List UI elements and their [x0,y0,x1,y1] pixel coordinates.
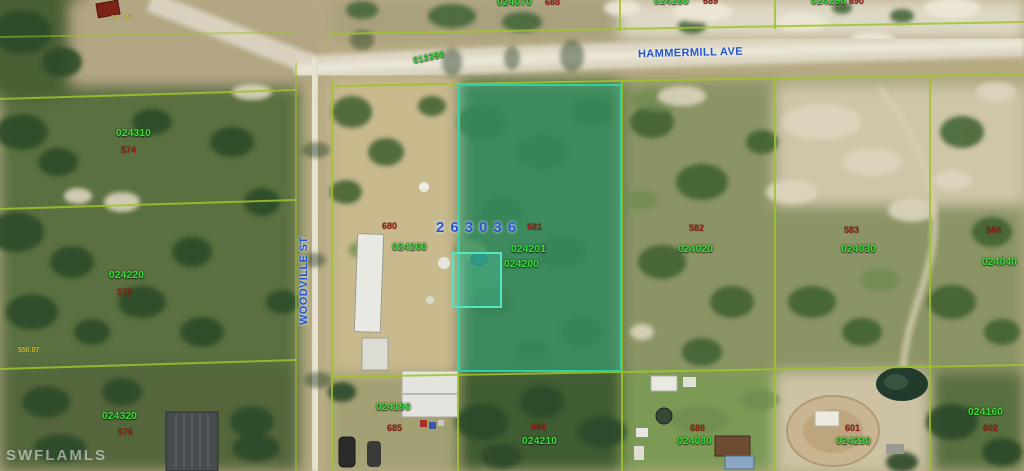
dark-vehicle [367,441,381,467]
dimension-label: 550.07 [18,347,39,354]
block-label-582: 582 [689,224,704,233]
white-shed [651,376,677,391]
dark-vehicle [339,437,355,467]
dirt-circle [787,396,879,466]
parcel-label-024070: 024070 [497,0,532,8]
white-shed [815,411,839,426]
parcel-label-024220: 024220 [109,271,144,281]
parcel-label-024160: 024160 [968,408,1003,418]
parcel-label-024210: 024210 [522,437,557,447]
parcel-label-024280: 024280 [654,0,689,7]
white-object [438,257,450,269]
mls-watermark: SWFLAMLS [6,448,107,463]
blue-roof-shed [725,456,754,469]
block-label-686: 686 [690,424,705,433]
white-vehicle [419,182,429,192]
block-label-680: 680 [382,222,397,231]
parcel-label-024310: 024310 [116,129,151,139]
pond [876,367,928,401]
parcel-label-024260: 024260 [392,243,427,253]
block-label-684: 684 [531,423,546,432]
small-trailer [362,338,388,370]
parcel-label-024201: 024201 [511,245,546,255]
parcel-label-024020: 024020 [678,245,713,255]
block-label-575: 575 [117,288,132,297]
parcel-label-024290: 024290 [811,0,846,7]
mobile-home [354,234,383,333]
block-label-574: 574 [121,146,136,155]
block-label-601: 601 [845,424,860,433]
block-label-689: 689 [703,0,718,6]
parcel-label-024030: 024030 [841,245,876,255]
street-label-woodville-st: WOODVILLE ST [299,236,310,325]
block-label-602: 602 [983,424,998,433]
selected-parcel-id-label: 263036 [436,220,522,235]
white-object [426,296,434,304]
brown-roof-shed [715,436,750,456]
aerial-parcel-map: HAMMERMILL AVE WOODVILLE ST 263036 01235… [0,0,1024,471]
parcel-label-024190: 024190 [376,403,411,413]
block-label-576: 576 [118,428,133,437]
block-label-583: 583 [844,226,859,235]
block-label-584: 584 [986,226,1001,235]
block-label-581: 581 [527,223,542,232]
white-object [634,446,644,460]
parcel-label-024040: 024040 [982,258,1017,268]
parcel-label-024200: 024200 [504,260,539,270]
block-label-688: 688 [545,0,560,7]
parcel-label-024080: 024080 [677,437,712,447]
white-object [636,428,648,437]
gray-shed-building [166,412,218,471]
parcel-label-024320: 024320 [102,412,137,422]
selected-parcel-subarea [452,252,502,308]
trampoline [656,408,672,424]
gray-vehicle [886,444,904,454]
white-shed [683,377,696,387]
parcel-label-024230: 024230 [836,437,871,447]
block-label-690: 690 [849,0,864,6]
block-label-685: 685 [387,424,402,433]
